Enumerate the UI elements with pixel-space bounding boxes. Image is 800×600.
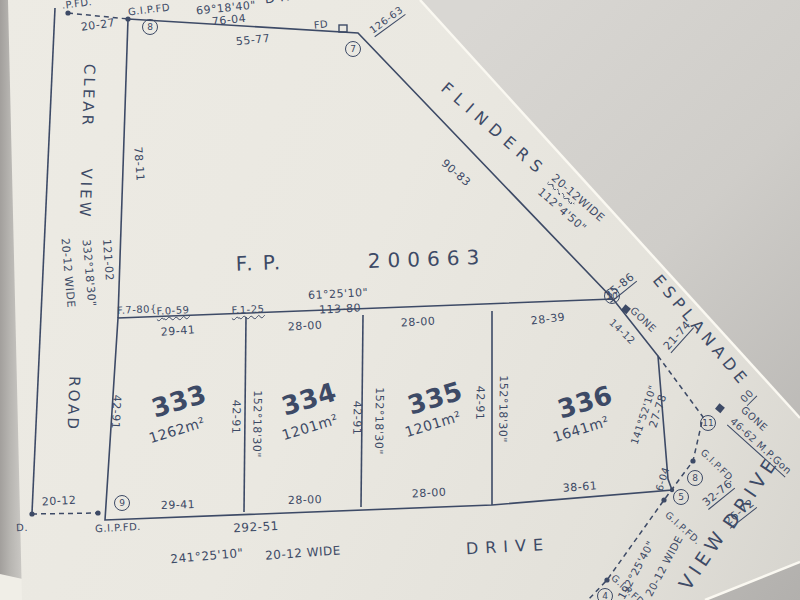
road-name-road: ROAD (65, 376, 82, 432)
lot333-east-bearing: 152°18'30" (251, 390, 263, 458)
lot334-east-bearing: 152°18'30" (373, 387, 385, 455)
plan-type-label: F. P. (236, 252, 283, 274)
ref-mark-11: 11 (700, 415, 716, 431)
dim-121-02: 121-02 (101, 239, 115, 282)
dim-78-11: 78-11 (132, 146, 145, 181)
dim-76-04: 76-04 (211, 13, 246, 28)
fence-dim-125: F.1-25 (231, 304, 265, 316)
paper-edge-highlight-bottom (705, 562, 800, 600)
lot335-front-dim: 28-00 (401, 316, 436, 329)
lot334-front-dim: 28-00 (288, 320, 323, 333)
road-name-view: VIEW (77, 168, 94, 219)
frontage-bearing: 61°25'10" (308, 287, 369, 301)
ref-mark-4: 4 (597, 588, 613, 600)
lot335-east-bearing: 152°18'30" (497, 375, 509, 443)
survey-dots (29, 10, 724, 582)
fence-dim-059: F.0-59 (156, 305, 190, 317)
ref-mark-7: 7 (345, 41, 361, 57)
tie-dim-20-12: 20-12 (42, 495, 77, 508)
ref-mark-9: 9 (114, 495, 130, 511)
ref-mark-5: 5 (673, 489, 689, 505)
dim-55-77: 55-77 (235, 33, 270, 48)
ref-mark-8a: 8 (142, 19, 158, 35)
lot333-east-dim: 42-91 (230, 400, 242, 435)
lot335-east-dim: 42-91 (474, 386, 486, 421)
survey-plan-photo: .P.FD. G.I.P.FD 20-27 DRIVE 69°18'40" 76… (0, 0, 800, 600)
plan-number: 200663 (368, 247, 487, 271)
lot335-rear-dim: 28-00 (412, 487, 447, 500)
lot333-rear-dim: 29-41 (161, 499, 196, 511)
ref-mark-8b: 8 (687, 470, 703, 486)
road-name-clear: CLEAR (79, 64, 96, 128)
frontage-distance: 113-80 (319, 302, 361, 315)
lot336-rear-dim: 38-61 (562, 480, 597, 493)
fd-peg-square (339, 25, 347, 32)
mark-fd: FD (313, 19, 328, 30)
fence-dim-780: F.7-80{ (117, 304, 157, 316)
lot333-west-dim: 42-91 (110, 395, 123, 430)
lot334-east-dim: 42-91 (351, 401, 363, 436)
lot333-front-dim: 29-41 (160, 324, 195, 337)
dim-292-51: 292-51 (233, 520, 279, 534)
lot334-rear-dim: 28-00 (288, 494, 323, 506)
solid-boundaries (32, 8, 672, 520)
mark-fd-bottom-left: D. (16, 523, 28, 534)
ref-mark-10: 10 (604, 288, 620, 304)
paper-edge-highlight (420, 0, 800, 418)
road-name-south-drive: DRIVE (466, 537, 551, 557)
